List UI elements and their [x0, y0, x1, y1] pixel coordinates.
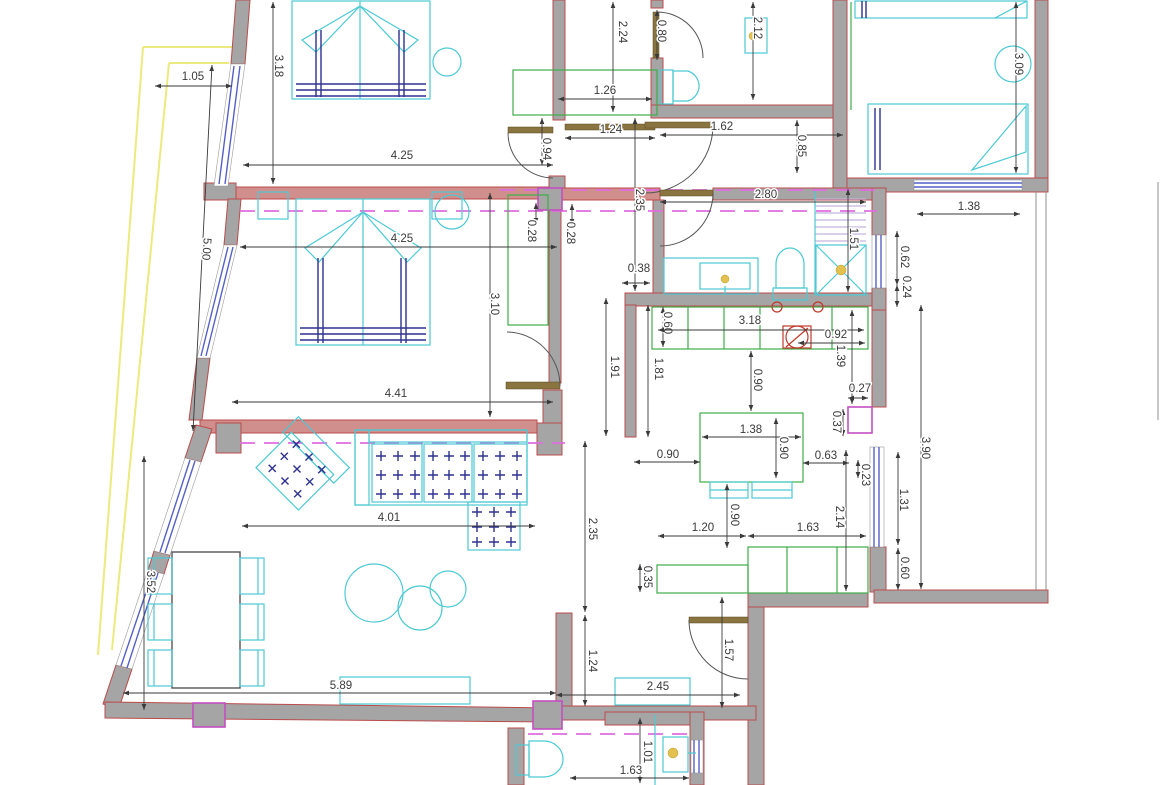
wall [553, 0, 565, 120]
dimension-label: 1.24 [600, 124, 623, 136]
dimension-label: 4.25 [391, 150, 413, 162]
dimension-label: 1.24 [586, 650, 598, 673]
door-arc [660, 193, 713, 246]
dimension-label: 0.37 [830, 411, 842, 433]
window [154, 458, 201, 555]
sofa-cushion-marks [376, 451, 522, 547]
wall [189, 358, 210, 420]
wardrobe [508, 195, 548, 325]
cabinet [657, 565, 748, 593]
dimension-label: 0.90 [657, 449, 679, 461]
dimension-label: 1.81 [652, 358, 664, 380]
dimension-label: 0.90 [751, 369, 763, 391]
dimension-label: 1.31 [897, 489, 909, 511]
dimension-label: 0.62 [898, 246, 910, 268]
cushion-marks [472, 507, 516, 547]
wall [833, 0, 847, 190]
dimension-label: 3.52 [144, 571, 156, 593]
dimension-label: 3.90 [919, 437, 931, 459]
dimension-label: 2.35 [586, 518, 598, 540]
dimension-label: 2.14 [833, 506, 845, 529]
cushion-marks [478, 451, 522, 499]
toilet-icon [660, 70, 699, 104]
toilet-icon [773, 248, 807, 300]
ceiling-lamp-icon [435, 195, 469, 229]
dimension-label: 4.41 [385, 388, 407, 400]
dimension-label: 0.94 [540, 138, 552, 161]
dimension-label: 1.26 [594, 85, 616, 97]
wall [224, 199, 241, 245]
dining-table-icon [148, 552, 264, 688]
dimension-label: 1.62 [711, 121, 733, 133]
cabinet [748, 547, 868, 593]
dimension-label: 0.90 [728, 504, 740, 526]
window [691, 740, 703, 773]
courtyard-lines [1036, 182, 1158, 590]
dimension-label: 0.27 [849, 383, 871, 395]
dimension-label: 0.35 [641, 566, 653, 588]
dimension-label: 1.05 [182, 71, 204, 83]
dimension-label: 1.38 [958, 201, 980, 213]
dimension-label: 0.23 [859, 464, 871, 486]
wall [748, 593, 868, 607]
dimension-label: 2.35 [633, 189, 645, 211]
wall [216, 423, 241, 453]
wall [872, 310, 886, 407]
dimension-label: 0.38 [628, 263, 650, 275]
dimension-label: 1.63 [797, 522, 819, 534]
sideboard-icon [340, 677, 470, 704]
pillars-layer [193, 188, 872, 729]
dimension-label: 4.25 [391, 233, 413, 245]
wall [605, 712, 700, 725]
dimension-label: 3.10 [488, 293, 500, 315]
dimension-label: 1.38 [740, 424, 762, 436]
wardrobe [513, 70, 657, 115]
wall [556, 613, 572, 708]
floor-plan-screenshot: 1.053.182.240.802.123.091.261.241.620.85… [0, 0, 1170, 785]
pillar [538, 188, 562, 210]
double-bed-icon [292, 1, 430, 99]
dimension-label: 3.18 [272, 55, 284, 77]
single-bed-icon [855, 1, 1027, 18]
window [214, 64, 245, 186]
dimension-label: 0.24 [900, 276, 912, 299]
dimension-label: 1.20 [692, 522, 714, 534]
door-leaf [689, 617, 748, 623]
wall [231, 0, 250, 64]
dimension-label: 2.80 [755, 189, 777, 201]
dimension-label: 0.80 [655, 20, 667, 42]
dimension-label: 3.09 [1012, 53, 1024, 75]
wall [653, 200, 664, 293]
floor-plan-canvas: 1.053.182.240.802.123.091.261.241.620.85… [0, 0, 1170, 785]
sink-icon [664, 258, 758, 294]
door-leaf [506, 382, 560, 389]
dimension-label: 2.12 [751, 17, 763, 39]
dimension-label: 5.00 [199, 237, 213, 260]
door-leaf [508, 127, 553, 133]
dimension-label: 2.45 [647, 681, 669, 693]
window [872, 235, 886, 288]
pillar [533, 701, 562, 729]
dimension-label: 0.90 [777, 437, 789, 459]
wall [872, 288, 886, 310]
dimension-label: 0.60 [661, 312, 673, 334]
wall [185, 425, 212, 462]
door-leaf [660, 190, 713, 196]
wall [651, 0, 663, 8]
wall [625, 305, 636, 437]
dimension-label: 0.85 [795, 135, 807, 157]
dimension-label: 0.60 [898, 557, 910, 579]
wall [105, 702, 556, 722]
dimension-label: 2.24 [616, 21, 628, 44]
pillar [193, 703, 225, 727]
ceiling-lamp-icon [433, 48, 461, 76]
door-leaf [645, 122, 713, 128]
dimension-label: 1.39 [834, 345, 846, 367]
wall [874, 590, 1048, 603]
dimension-label: 1.01 [641, 741, 653, 763]
wall [537, 423, 562, 455]
dimension-label: 1.57 [722, 639, 734, 661]
dimension-label: 0.63 [815, 450, 837, 462]
single-bed-icon [868, 104, 1028, 174]
dimension-label: 1.91 [608, 356, 620, 378]
plant-icon [345, 564, 466, 630]
walls-layer [103, 0, 1048, 785]
cushion-marks [376, 451, 420, 499]
window [914, 180, 1022, 190]
dimension-label: 1.63 [620, 765, 642, 777]
wall [870, 547, 886, 592]
door-arc [689, 620, 748, 679]
window [870, 447, 884, 547]
duct-box [848, 407, 872, 433]
double-bed-icon [296, 199, 430, 345]
dimension-label: 3.18 [739, 315, 761, 327]
dimension-label: 4.01 [378, 512, 400, 524]
dimension-label: 0.28 [525, 220, 537, 242]
wall [651, 105, 847, 118]
wall [748, 607, 764, 785]
dimension-label: 1.51 [847, 228, 859, 250]
dimension-label: 0.28 [564, 222, 576, 244]
hob-icon [783, 326, 811, 348]
dimension-label: 5.89 [330, 680, 352, 692]
dimension-label: 0.92 [825, 329, 847, 341]
shower-icon [816, 245, 866, 295]
cushion-marks [428, 451, 470, 499]
wall [1035, 0, 1048, 180]
window [197, 245, 237, 358]
wall [236, 187, 562, 199]
